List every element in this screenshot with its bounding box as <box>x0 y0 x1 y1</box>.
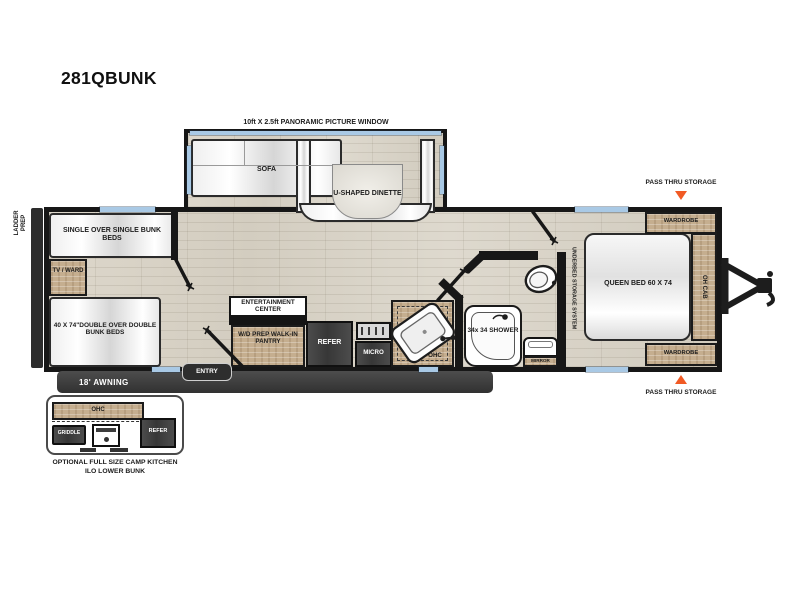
tv-wardrobe-cabinet <box>49 259 87 296</box>
double-bunk-label: 40 X 74"DOUBLE OVER DOUBLE BUNK BEDS <box>52 322 158 337</box>
window-bedroom-bottom <box>586 367 628 372</box>
floorplan-page: 281QBUNK 10ft X 2.5ft PANORAMIC PICTURE … <box>0 0 800 600</box>
mirror-glass <box>528 341 553 348</box>
bath-wall-left <box>455 295 463 367</box>
kitchen-ohc-label: OHC <box>420 352 450 359</box>
camp-kitchen-caption-2: ILO LOWER BUNK <box>25 468 205 476</box>
shower-pan <box>471 312 515 360</box>
camp-kitchen-caption-1: OPTIONAL FULL SIZE CAMP KITCHEN <box>25 459 205 467</box>
griddle-label: GRIDDLE <box>52 431 86 437</box>
camp-stove <box>92 424 120 447</box>
panoramic-window-label: 10ft X 2.5ft PANORAMIC PICTURE WINDOW <box>185 119 447 127</box>
dinette-label: U-SHAPED DINETTE <box>332 190 403 198</box>
cooktop-vent <box>356 322 391 340</box>
hitch-a-frame <box>722 258 773 314</box>
camp-stove-burner <box>104 437 109 442</box>
camp-kitchen-dashed-line <box>52 421 144 422</box>
slide-window-right <box>440 146 444 194</box>
pass-thru-top-label: PASS THRU STORAGE <box>622 179 740 186</box>
entry-label: ENTRY <box>182 368 232 375</box>
tv-band <box>229 316 307 325</box>
camp-kitchen-step-2 <box>110 448 128 452</box>
pantry-label: W/D PREP WALK-IN PANTRY <box>233 331 303 345</box>
mirror-label: MIRROR <box>523 358 558 363</box>
window-bunk-bottom <box>152 367 180 372</box>
queen-bed-label: QUEEN BED 60 X 74 <box>602 280 674 288</box>
vent-grid <box>361 327 386 335</box>
window-bedroom-top <box>575 207 628 212</box>
single-bunk-label: SINGLE OVER SINGLE BUNK BEDS <box>57 227 167 243</box>
pass-thru-bottom-label: PASS THRU STORAGE <box>622 389 740 396</box>
ladder-prep-label: LADDER PREP <box>14 203 28 243</box>
sofa-cushion-line <box>244 141 245 165</box>
shower-stall <box>464 305 522 367</box>
shower-label: 34x 34 SHOWER <box>466 327 520 334</box>
bath-wall-top <box>479 251 538 260</box>
dinette-bench-left <box>296 139 311 213</box>
dinette-bench-right <box>420 139 435 213</box>
pass-thru-bottom-arrow-icon <box>675 375 687 384</box>
slide-window-top <box>190 131 441 135</box>
camp-stove-controls <box>96 428 116 432</box>
window-kitchen-bottom <box>419 367 438 372</box>
vanity-mirror <box>523 337 558 357</box>
camp-kitchen-ohc-label: OHC <box>52 407 144 414</box>
oh-cab-label: OH CAB <box>691 233 717 341</box>
rear-bumper <box>31 208 43 368</box>
wardrobe-bottom-label: WARDROBE <box>645 350 717 357</box>
bath-bedroom-wall <box>557 252 566 367</box>
awning-label: 18' AWNING <box>79 378 159 387</box>
underbed-storage-label: UNDERBED STORAGE SYSTEM <box>567 232 580 344</box>
wardrobe-top-label: WARDROBE <box>645 218 717 225</box>
window-bunk-top <box>100 207 155 212</box>
camp-kitchen-step-1 <box>80 448 96 452</box>
sofa-label: SOFA <box>191 166 342 174</box>
tv-ward-label: TV / WARD <box>49 268 87 275</box>
micro-label: MICRO <box>355 349 392 356</box>
pass-thru-top-arrow-icon <box>675 191 687 200</box>
entertainment-center-label: ENTERTAINMENT CENTER <box>229 299 307 313</box>
camp-refer-label: REFER <box>140 428 176 434</box>
page-title: 281QBUNK <box>61 68 157 89</box>
refer-label: REFER <box>306 339 353 347</box>
bunk-room-wall <box>171 212 178 260</box>
